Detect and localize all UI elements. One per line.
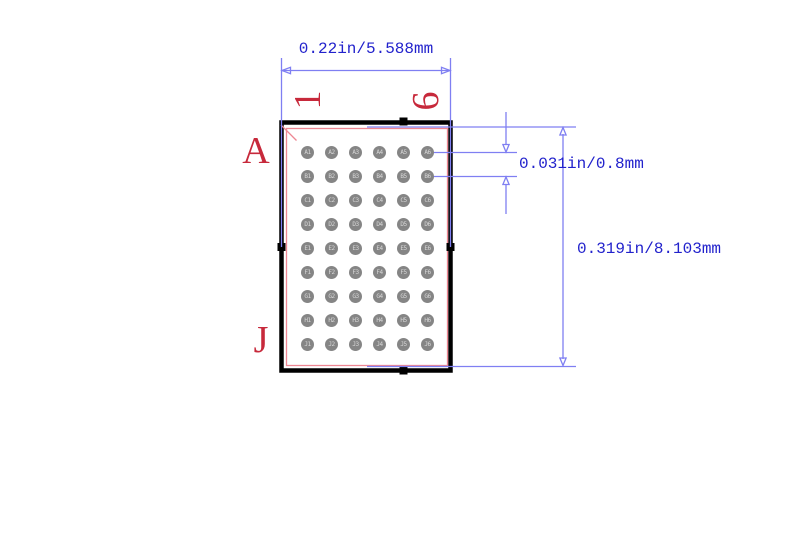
pin-J6: J6 [421,338,434,351]
pin-D5: D5 [397,218,410,231]
pin-E6: E6 [421,242,434,255]
pin-E2: E2 [325,242,338,255]
pin-E5: E5 [397,242,410,255]
pin-D6: D6 [421,218,434,231]
pin-B1: B1 [301,170,314,183]
pin-H1: H1 [301,314,314,327]
arrow-down-icon [503,145,509,153]
pin-B5: B5 [397,170,410,183]
pin-E3: E3 [349,242,362,255]
pin-C3: C3 [349,194,362,207]
pin-G3: G3 [349,290,362,303]
pin-A2: A2 [325,146,338,159]
arrow-down-icon [560,358,566,366]
pin-D4: D4 [373,218,386,231]
pin-G4: G4 [373,290,386,303]
pin-G5: G5 [397,290,410,303]
pin-J4: J4 [373,338,386,351]
row-label-first: A [242,132,269,170]
pin-H2: H2 [325,314,338,327]
tick-bottom [400,367,408,375]
column-label-last: 6 [407,92,445,111]
pin-A1: A1 [301,146,314,159]
pin-B3: B3 [349,170,362,183]
arrow-up-icon [560,128,566,136]
pin-F6: F6 [421,266,434,279]
pin-A4: A4 [373,146,386,159]
pin-G2: G2 [325,290,338,303]
pin-D1: D1 [301,218,314,231]
pin-G1: G1 [301,290,314,303]
pin-H4: H4 [373,314,386,327]
pin-G6: G6 [421,290,434,303]
pin-J3: J3 [349,338,362,351]
column-label-first: 1 [289,91,327,110]
pin-E1: E1 [301,242,314,255]
pin-D2: D2 [325,218,338,231]
pin-J1: J1 [301,338,314,351]
arrow-up-icon [503,177,509,185]
row-label-last: J [254,321,269,359]
pin-C1: C1 [301,194,314,207]
pin-F4: F4 [373,266,386,279]
pin-D3: D3 [349,218,362,231]
pin-A3: A3 [349,146,362,159]
pin-A5: A5 [397,146,410,159]
pin-B2: B2 [325,170,338,183]
height-dimension-label: 0.319in/8.103mm [577,241,721,257]
pin-C6: C6 [421,194,434,207]
pin-A6: A6 [421,146,434,159]
pin-E4: E4 [373,242,386,255]
pin-J5: J5 [397,338,410,351]
pin-H6: H6 [421,314,434,327]
bga-footprint-drawing: A1A2A3A4A5A6B1B2B3B4B5B6C1C2C3C4C5C6D1D2… [0,0,800,555]
tick-top [400,118,408,126]
pin-J2: J2 [325,338,338,351]
pin-F5: F5 [397,266,410,279]
pin-B6: B6 [421,170,434,183]
pin-H5: H5 [397,314,410,327]
pitch-dimension-label: 0.031in/0.8mm [519,156,644,172]
pin-F2: F2 [325,266,338,279]
pin-H3: H3 [349,314,362,327]
width-dimension-label: 0.22in/5.588mm [299,41,433,57]
pin-C2: C2 [325,194,338,207]
pin-F1: F1 [301,266,314,279]
pin-C4: C4 [373,194,386,207]
pin-B4: B4 [373,170,386,183]
pin-C5: C5 [397,194,410,207]
pin-F3: F3 [349,266,362,279]
